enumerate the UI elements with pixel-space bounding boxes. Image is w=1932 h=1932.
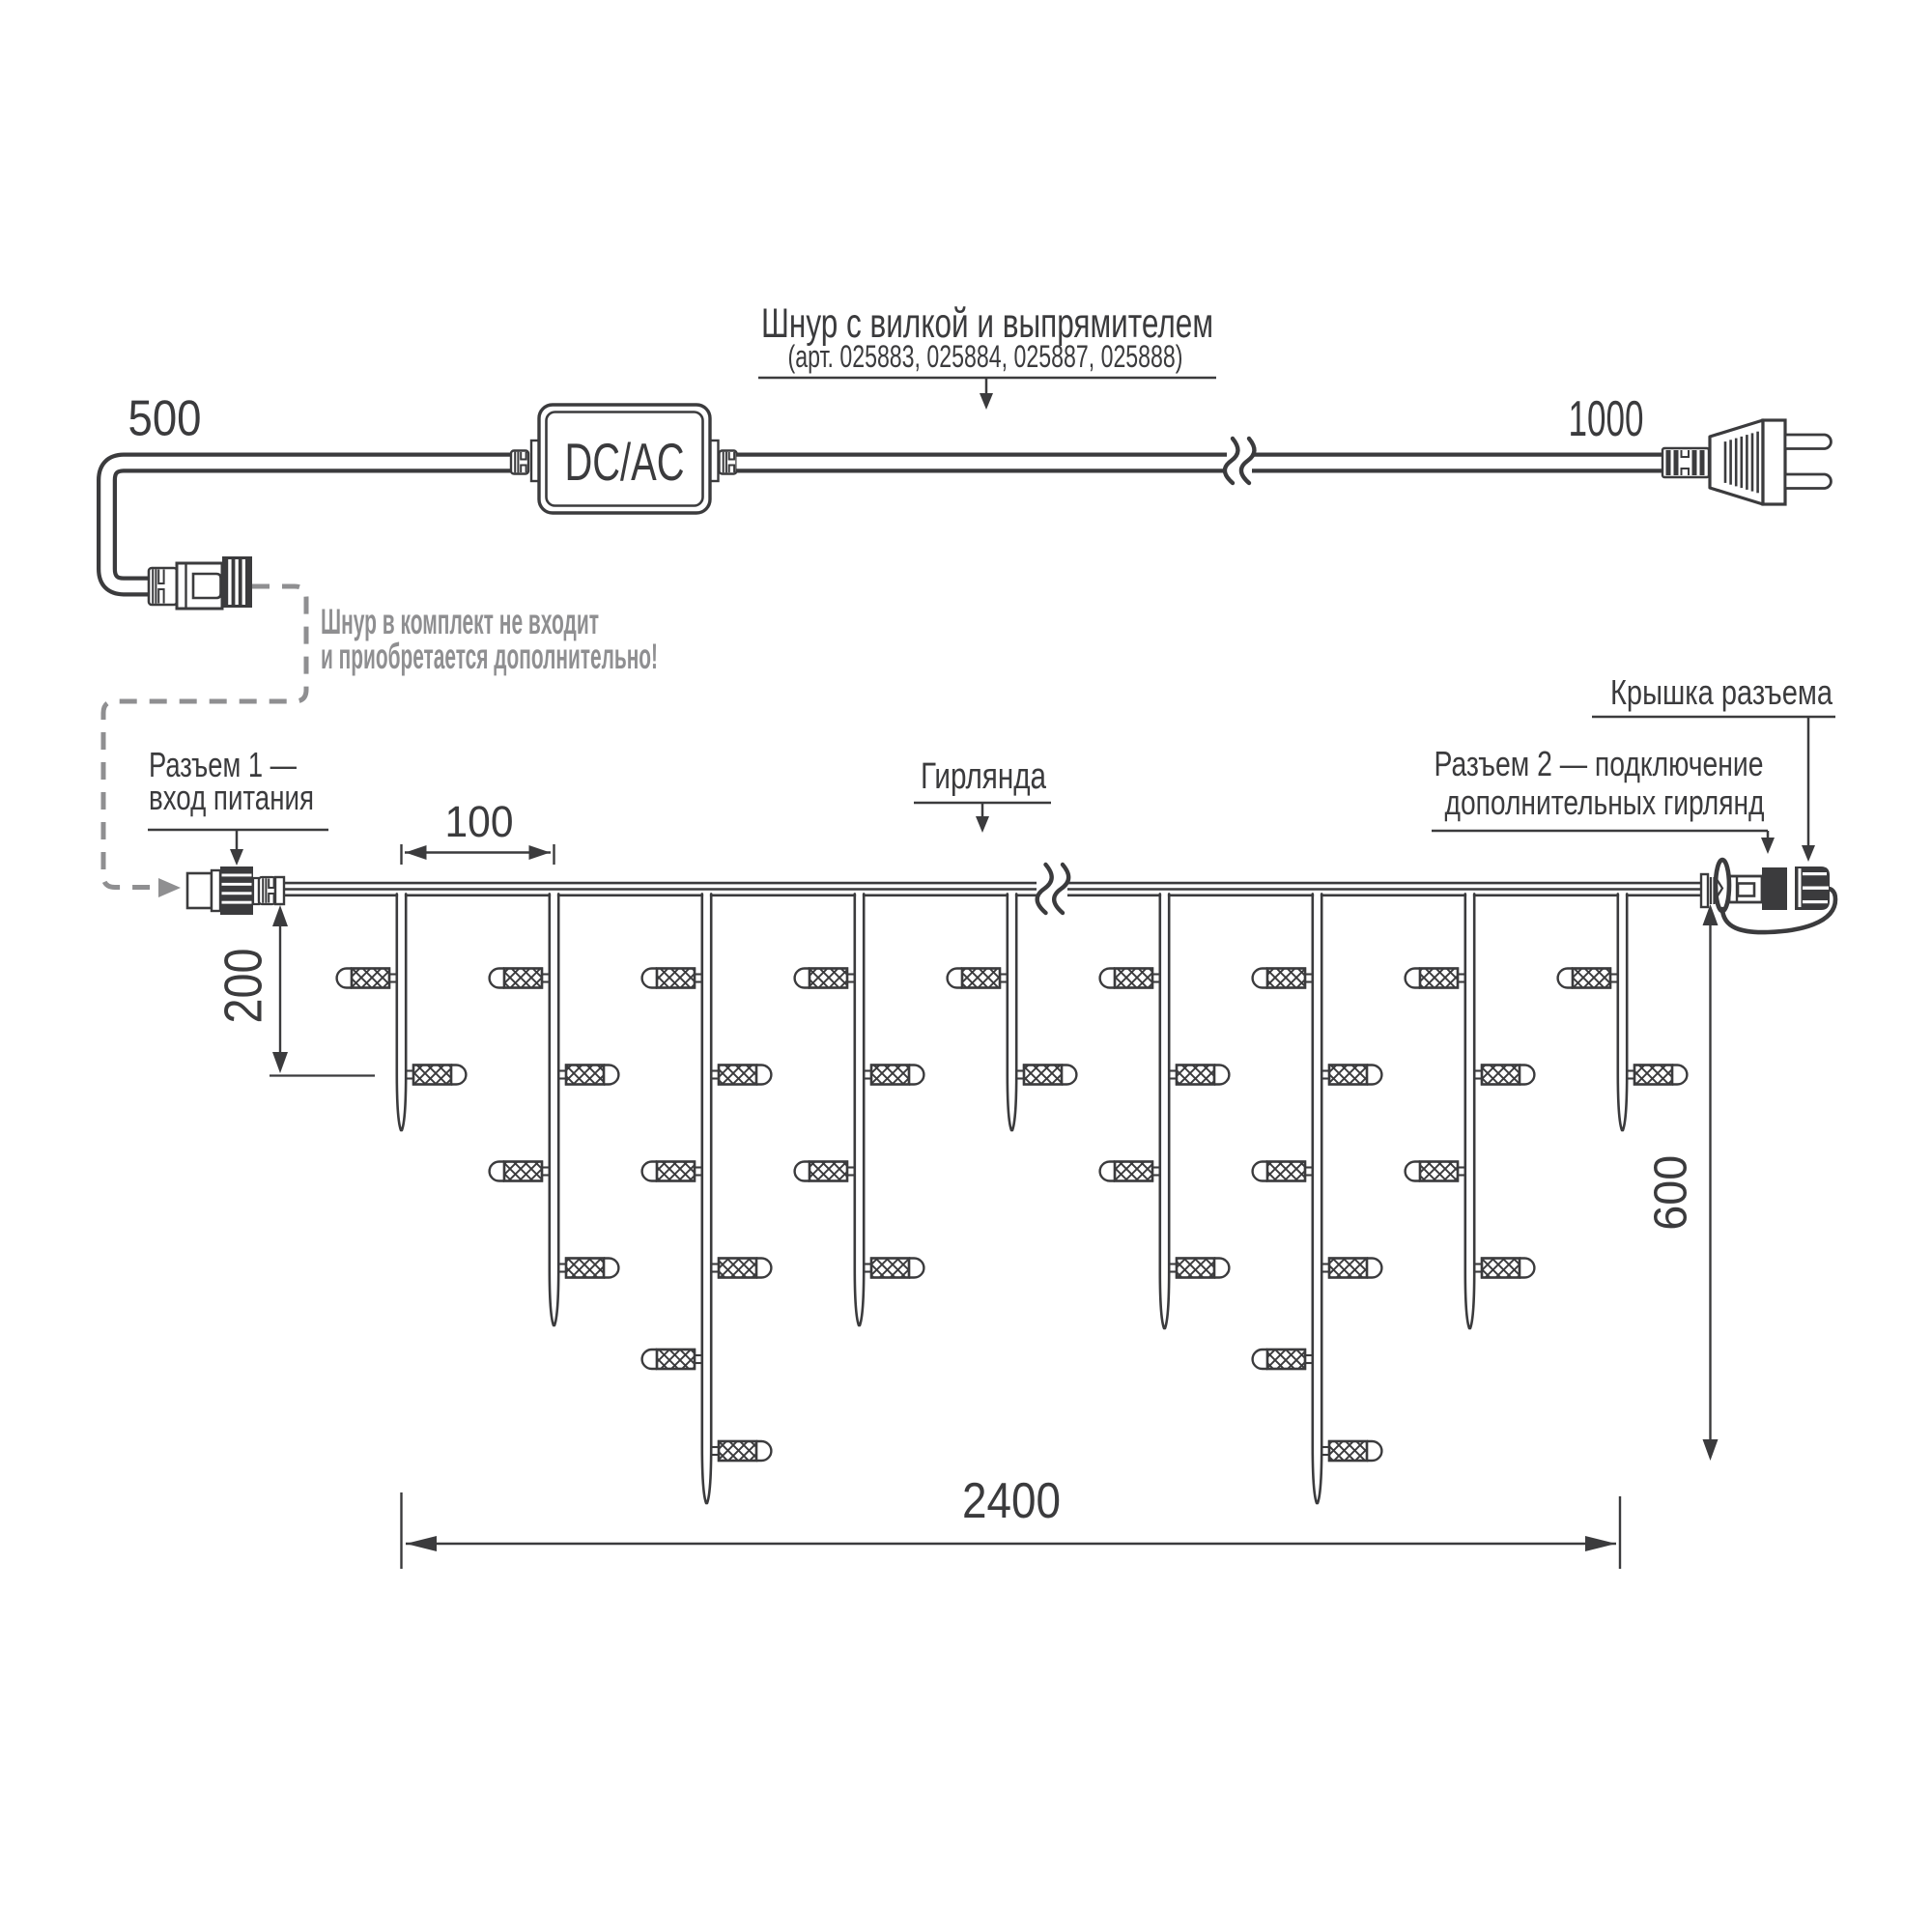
svg-text:Крышка разъема: Крышка разъема [1610,672,1833,712]
svg-text:600: 600 [1646,1155,1697,1231]
svg-text:500: 500 [128,390,202,446]
svg-text:200: 200 [213,949,273,1024]
svg-text:Разъем 2 — подключение: Разъем 2 — подключение [1435,744,1764,783]
svg-text:Гирлянда: Гирлянда [921,756,1047,797]
svg-text:Шнур в комплект не входит: Шнур в комплект не входит [321,602,599,641]
svg-text:100: 100 [445,797,514,846]
svg-text:вход питания: вход питания [149,778,314,817]
svg-text:2400: 2400 [962,1472,1061,1528]
svg-text:и приобретается дополнительно!: и приобретается дополнительно! [321,637,658,676]
svg-text:дополнительных гирлянд: дополнительных гирлянд [1445,782,1765,822]
svg-text:1000: 1000 [1569,390,1644,446]
svg-text:DC/AC: DC/AC [565,432,685,492]
svg-text:(арт. 025883, 025884, 025887,: (арт. 025883, 025884, 025887, 025888) [788,339,1183,374]
